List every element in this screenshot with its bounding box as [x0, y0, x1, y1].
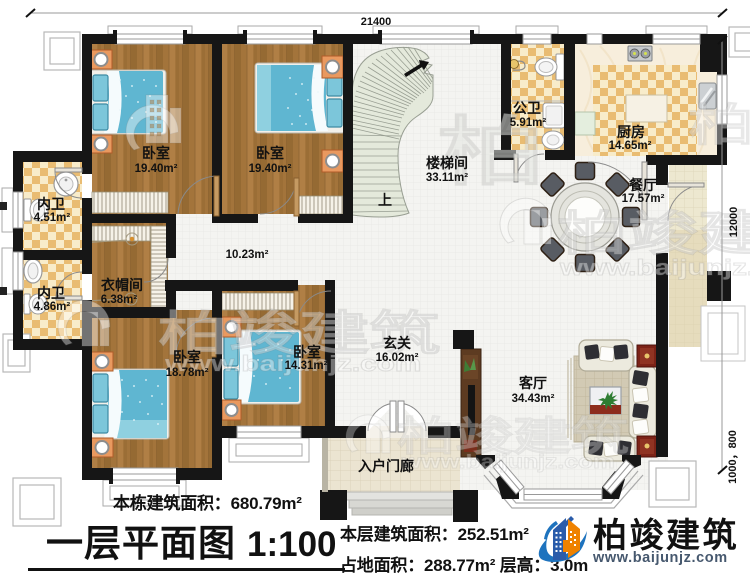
- svg-text:14.31m²: 14.31m²: [285, 360, 328, 372]
- svg-text:www.baijunjz.com: www.baijunjz.com: [592, 550, 728, 566]
- svg-text:厨房: 厨房: [617, 124, 645, 140]
- svg-text:1000，800: 1000，800: [727, 430, 739, 484]
- svg-text:本栋建筑面积：680.79m²: 本栋建筑面积：680.79m²: [113, 493, 302, 513]
- svg-text:内卫: 内卫: [37, 196, 65, 212]
- svg-text:入户门廊: 入户门廊: [358, 458, 414, 474]
- svg-text:卧室: 卧室: [256, 145, 284, 161]
- svg-text:www.baijunjz.com: www.baijunjz.com: [559, 255, 750, 280]
- svg-text:5.91m²: 5.91m²: [510, 117, 547, 129]
- svg-text:6.38m²: 6.38m²: [101, 294, 138, 306]
- svg-text:16.02m²: 16.02m²: [376, 352, 419, 364]
- svg-text:公卫: 公卫: [513, 100, 541, 116]
- svg-text:一层平面图: 一层平面图: [46, 523, 236, 564]
- svg-text:4.51m²: 4.51m²: [34, 212, 71, 224]
- svg-text:卧室: 卧室: [293, 344, 321, 360]
- svg-text:餐厅: 餐厅: [628, 177, 657, 193]
- svg-text:上: 上: [378, 192, 392, 208]
- svg-text:楼梯间: 楼梯间: [426, 155, 468, 171]
- svg-text:本层建筑面积：252.51m²: 本层建筑面积：252.51m²: [340, 524, 529, 544]
- svg-text:34.43m²: 34.43m²: [512, 393, 555, 405]
- svg-text:18.78m²: 18.78m²: [166, 367, 209, 379]
- svg-text:客厅: 客厅: [518, 375, 547, 391]
- svg-text:1:100: 1:100: [247, 525, 337, 564]
- svg-text:19.40m²: 19.40m²: [135, 163, 178, 175]
- svg-text:14.65m²: 14.65m²: [609, 140, 652, 152]
- svg-text:21400: 21400: [361, 16, 392, 28]
- svg-text:17.57m²: 17.57m²: [622, 193, 665, 205]
- svg-text:10.23m²: 10.23m²: [226, 249, 269, 261]
- svg-text:卧室: 卧室: [173, 349, 201, 365]
- svg-text:19.40m²: 19.40m²: [249, 163, 292, 175]
- svg-text:12000: 12000: [728, 207, 740, 238]
- svg-text:卧室: 卧室: [142, 145, 170, 161]
- svg-text:4.86m²: 4.86m²: [34, 301, 71, 313]
- svg-text:www.baijunjz.com: www.baijunjz.com: [401, 451, 615, 473]
- svg-text:衣帽间: 衣帽间: [101, 277, 143, 293]
- svg-text:玄关: 玄关: [383, 335, 411, 351]
- svg-text:33.11m²: 33.11m²: [426, 172, 468, 184]
- svg-text:柏竣建筑: 柏竣建筑: [557, 208, 750, 261]
- svg-text:内卫: 内卫: [37, 285, 65, 301]
- svg-text:柏竣: 柏竣: [688, 100, 750, 149]
